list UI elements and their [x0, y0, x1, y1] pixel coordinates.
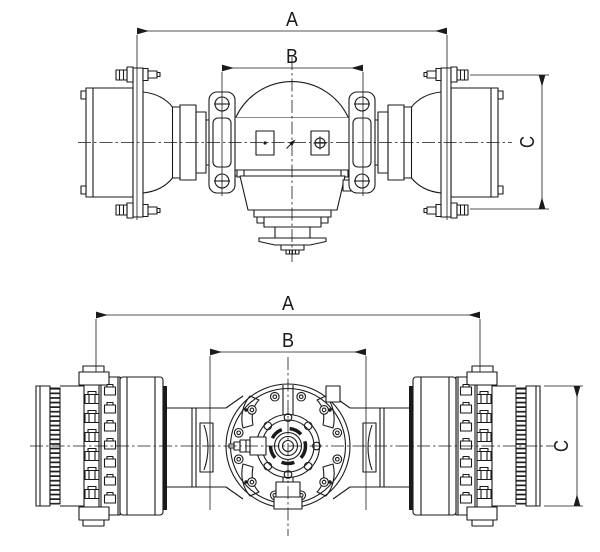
rear-view: A B C: [30, 293, 583, 536]
rear-dim-label-c: C: [551, 440, 573, 452]
front-view: A B C: [78, 9, 549, 262]
front-dim-label-c: C: [517, 136, 539, 148]
axle-engineering-drawing: A B C: [0, 0, 600, 552]
rear-dim-label-b: B: [282, 330, 294, 352]
oil-plug-dot: [263, 141, 266, 144]
front-dim-label-b: B: [286, 46, 298, 68]
drawing-canvas: A B C: [0, 0, 600, 552]
front-dim-label-a: A: [286, 9, 299, 31]
rear-dim-label-a: A: [282, 293, 295, 315]
front-carrier-gearbox: [235, 170, 360, 254]
